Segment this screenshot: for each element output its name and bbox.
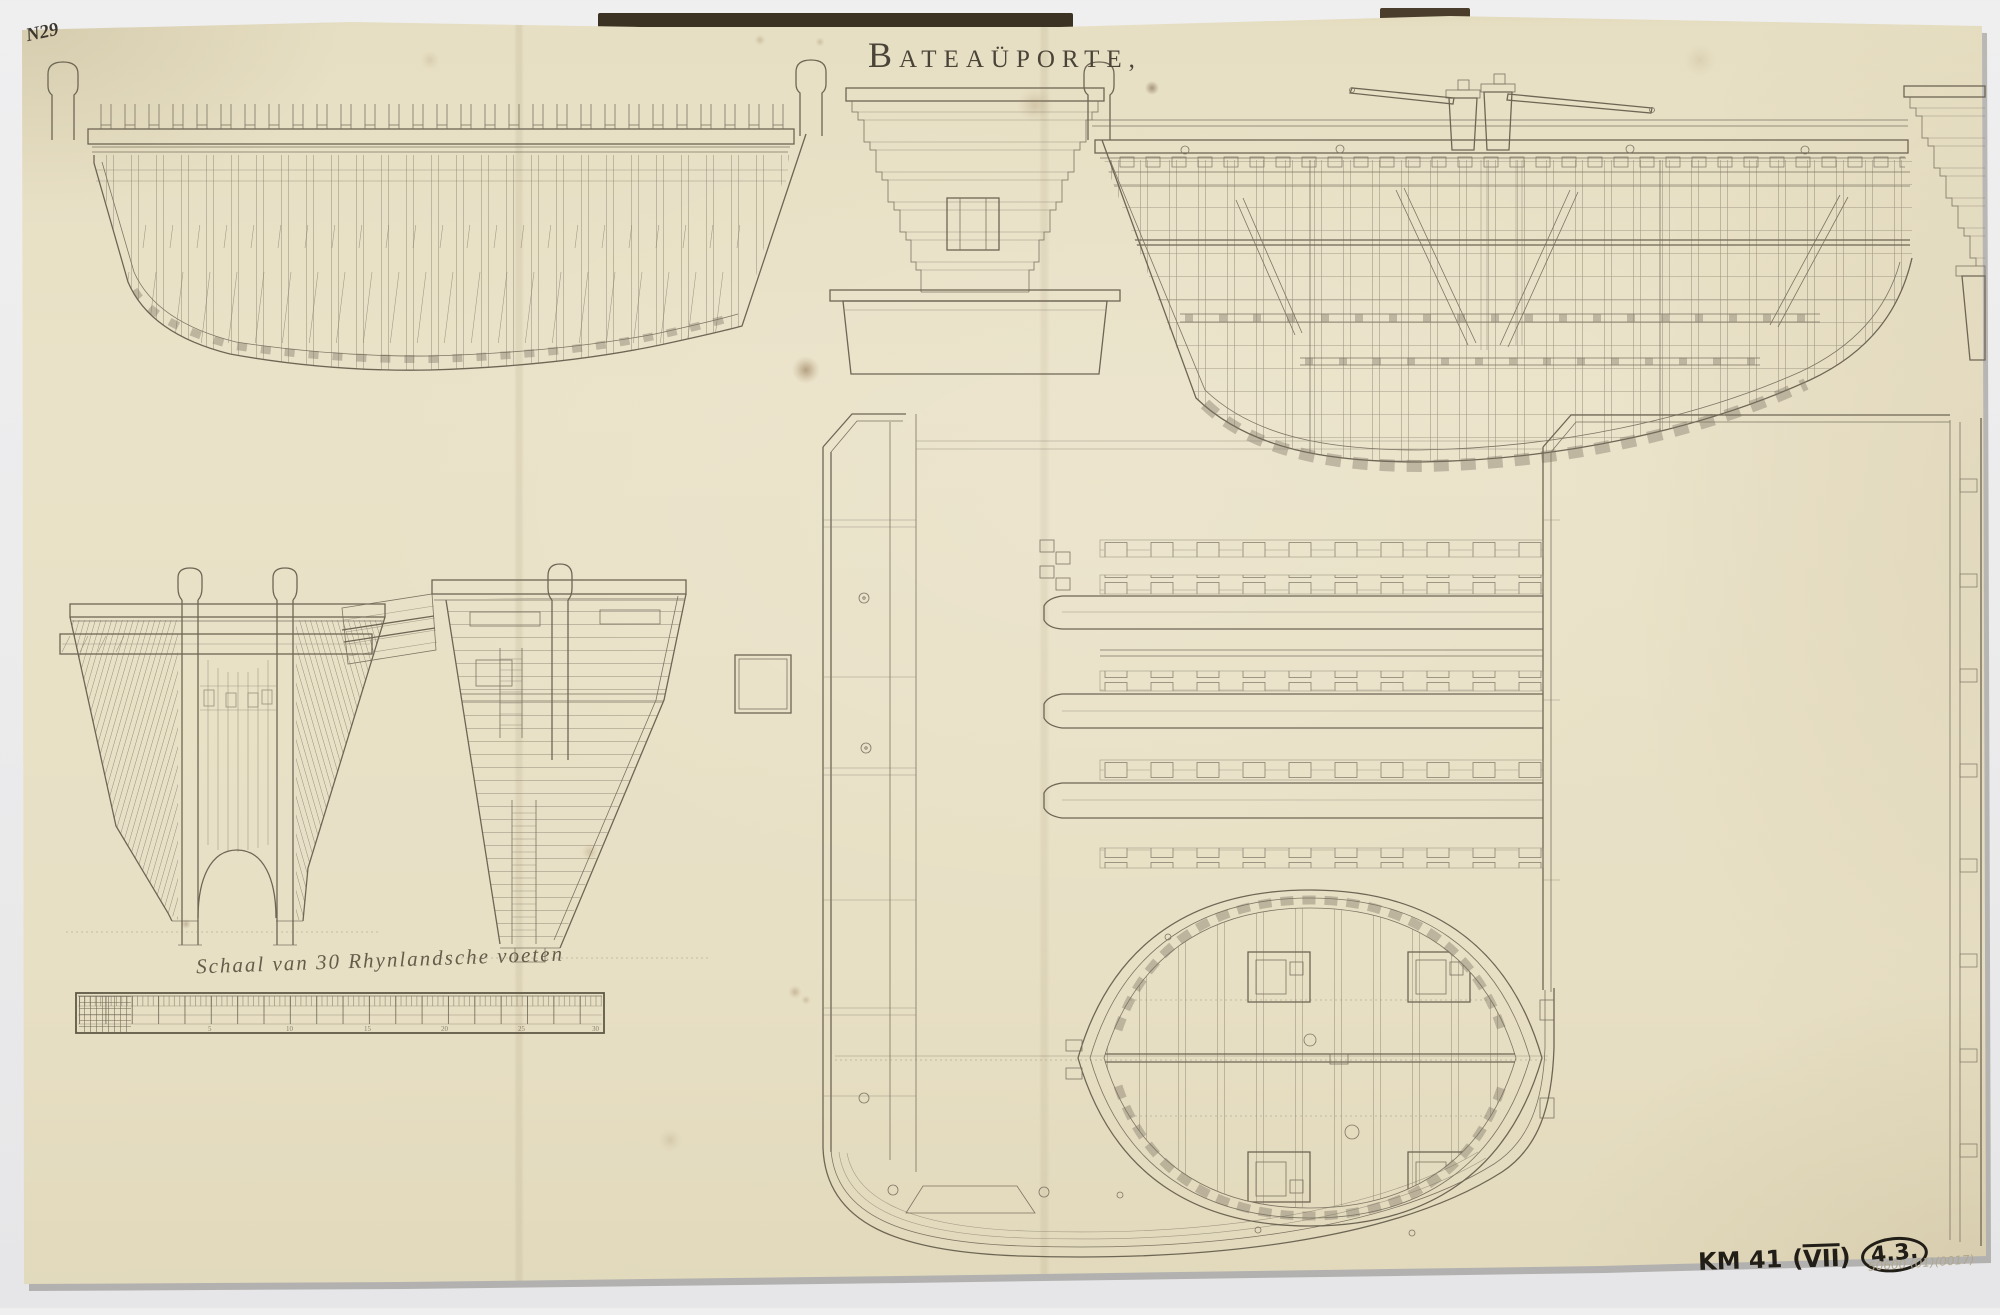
pedestal-cap bbox=[846, 88, 1104, 101]
left-bitt bbox=[48, 62, 78, 140]
planking bbox=[446, 594, 686, 944]
svg-text:10: 10 bbox=[286, 1025, 294, 1033]
right-abutment bbox=[1904, 86, 1985, 360]
svg-text:25: 25 bbox=[518, 1025, 526, 1033]
deck-rail bbox=[1095, 140, 1908, 153]
svg-text:15: 15 bbox=[364, 1025, 372, 1033]
top-rail bbox=[88, 129, 794, 144]
pedestal-base bbox=[843, 301, 1107, 374]
chamfer-panel bbox=[906, 1186, 1035, 1213]
boat-plan bbox=[1066, 890, 1542, 1236]
dock-wall-left bbox=[823, 414, 916, 1172]
drawing-title: BATEAÜPORTE, bbox=[868, 34, 1142, 76]
diagonal-braces bbox=[120, 225, 740, 343]
svg-text:5: 5 bbox=[208, 1025, 212, 1033]
top-wale bbox=[70, 604, 385, 617]
ruler-numbers: 5 10 15 20 25 30 bbox=[208, 1025, 600, 1033]
guide-post-right bbox=[273, 568, 297, 945]
grating bbox=[735, 655, 791, 713]
fine-divisions bbox=[79, 996, 131, 1032]
guide-post-left bbox=[178, 568, 202, 945]
top-wale bbox=[432, 580, 686, 594]
dock-wall-far-right bbox=[1950, 418, 1981, 1246]
svg-text:30: 30 bbox=[592, 1025, 600, 1033]
volume-numeral: VII bbox=[1803, 1243, 1840, 1271]
side-elevation-drawing bbox=[48, 60, 826, 370]
bilge-pumps bbox=[1350, 74, 1655, 150]
right-bitt bbox=[796, 60, 826, 136]
dock-wall-right bbox=[1540, 415, 1950, 1118]
central-planks bbox=[200, 660, 276, 852]
title-rest: ATEAÜPORTE, bbox=[899, 46, 1142, 73]
keel-arch bbox=[198, 850, 276, 918]
volume-stamp: (VII) bbox=[1792, 1242, 1851, 1272]
hull-planking-grid bbox=[1104, 160, 1912, 462]
central-clamp bbox=[947, 198, 999, 250]
title-initial: B bbox=[868, 35, 899, 75]
cross-section-hatched bbox=[60, 568, 385, 945]
cross-section-structural bbox=[342, 564, 708, 962]
inboard-elevation-drawing bbox=[1084, 62, 1985, 466]
port-planking-fan bbox=[70, 620, 178, 920]
technical-drawing-canvas: 5 10 15 20 25 30 bbox=[0, 0, 2000, 1308]
pump-handle-left bbox=[1350, 88, 1454, 104]
bulwark-posts bbox=[100, 104, 790, 129]
inventory-code: KM 41 bbox=[1698, 1245, 1783, 1276]
svg-text:20: 20 bbox=[441, 1025, 449, 1033]
deck-beams bbox=[1040, 540, 1543, 868]
pump-handle-right bbox=[1507, 94, 1652, 113]
starboard-planking-fan bbox=[296, 620, 385, 920]
plan-view-drawing bbox=[735, 414, 1981, 1257]
end-elevation-drawing bbox=[830, 88, 1120, 374]
scale-bar: 5 10 15 20 25 30 bbox=[76, 993, 604, 1033]
